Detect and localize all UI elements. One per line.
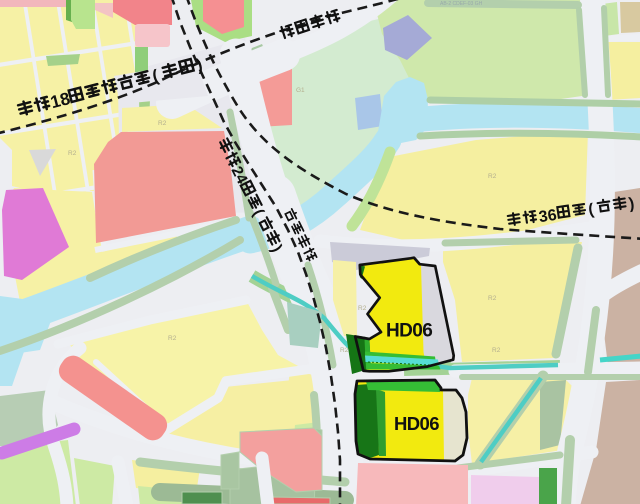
svg-text:R2: R2 [158,120,167,127]
svg-text:G1: G1 [296,87,305,94]
svg-text:R2: R2 [488,295,497,302]
svg-text:R2: R2 [168,335,177,342]
svg-text:R2: R2 [340,347,349,354]
svg-text:HD06: HD06 [394,413,439,434]
svg-text:HD06: HD06 [386,321,432,342]
svg-text:R2: R2 [358,305,367,312]
svg-text:R2: R2 [492,347,501,354]
svg-text:AB-2 CDEF-03 GH: AB-2 CDEF-03 GH [440,1,483,7]
svg-text:R2: R2 [68,150,77,157]
svg-text:36: 36 [538,207,558,226]
svg-text:R2: R2 [488,173,497,180]
